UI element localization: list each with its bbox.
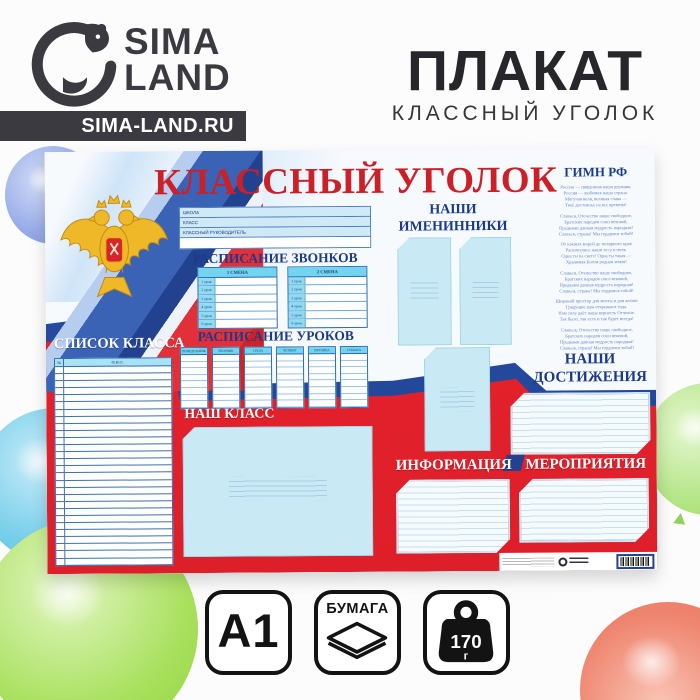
bells-heading: РАСПИСАНИЕ ЗВОНКОВ	[179, 250, 371, 267]
bells-table-shift1: 1 СМЕНА 1 урок 2 урок 3 урок 4 урок 5 ур…	[197, 267, 277, 330]
product-photo: SIMA LAND SIMA-LAND.RU ПЛАКАТ КЛАССНЫЙ У…	[0, 0, 700, 700]
bell-row-label: 6 урок	[289, 319, 306, 328]
school-form: ШКОЛА КЛАСС КЛАССНЫЙ РУКОВОДИТЕЛЬ	[179, 206, 371, 249]
birthday-card	[397, 237, 452, 345]
achievements-heading: НАШИ ДОСТИЖЕНИЯ	[530, 350, 650, 387]
day-column: СУББОТА	[340, 346, 368, 408]
birthday-card	[459, 237, 512, 345]
achievements-panel	[510, 392, 650, 455]
material-badge: БУМАГА	[314, 590, 401, 675]
mini-brand-text	[569, 557, 588, 565]
bells-table-shift2: 2 СМЕНА 1 урок 2 урок 3 урок 4 урок 5 ур…	[287, 266, 367, 329]
bell-row-label: 4 урок	[199, 303, 216, 311]
product-title: ПЛАКАТ	[355, 38, 695, 104]
bell-row-label: 1 урок	[288, 277, 305, 285]
barcode	[618, 555, 652, 566]
poster-title: КЛАССНЫЙ УГОЛОК	[131, 158, 581, 204]
brand-wordmark: SIMA LAND	[124, 24, 231, 96]
material-label: БУМАГА	[318, 601, 397, 617]
website-banner: SIMA-LAND.RU	[0, 111, 246, 141]
anthem-stanza: Россия — священная наша держава, Россия …	[543, 184, 649, 209]
mini-bear-icon	[558, 557, 567, 566]
day-column: ПЯТНИЦА	[308, 346, 336, 408]
bell-row-label: 3 урок	[199, 295, 216, 303]
product-subtitle: КЛАССНЫЙ УГОЛОК	[355, 102, 695, 126]
barcode-pad	[616, 553, 654, 568]
anthem-stanza: Славься, Отечество наше свободное, Братс…	[543, 212, 649, 237]
placeholder-text	[229, 476, 327, 501]
size-badge: А1	[205, 590, 292, 675]
bell-row-label: 1 урок	[198, 278, 215, 286]
birthdays-heading: НАШИ ИМЕНИННИКИ	[395, 201, 511, 236]
weight-icon: 170 г	[436, 598, 496, 668]
col-name: Ф.И.О.	[64, 358, 171, 366]
bell-row-label: 2 урок	[198, 286, 215, 294]
spec-badges: А1 БУМАГА 170 г	[205, 590, 510, 675]
anthem-stanza: Славься, Отечество наше свободное, Братс…	[543, 269, 649, 294]
lesson-cell	[309, 400, 335, 407]
shift1-header: 1 СМЕНА	[198, 268, 276, 279]
bell-row-label: 3 урок	[289, 294, 306, 302]
balloon-knot	[673, 512, 686, 525]
information-panel	[396, 479, 511, 554]
placeholder-text	[441, 387, 474, 411]
birthday-card	[424, 347, 491, 451]
lessons-heading: РАСПИСАНИЕ УРОКОВ	[180, 328, 372, 345]
print-info-strip	[499, 552, 657, 571]
lesson-cell	[341, 400, 367, 407]
form-field-empty	[180, 237, 370, 248]
poster: КЛАССНЫЙ УГОЛОК ШКОЛА КЛАСС КЛАССНЫЙ РУК…	[45, 148, 658, 574]
anthem-text: Россия — священная наша держава, Россия …	[543, 184, 650, 356]
svg-text:170: 170	[450, 631, 481, 652]
events-panel	[519, 478, 649, 543]
bell-row-label: 5 урок	[289, 311, 306, 319]
day-column: ВТОРНИК	[212, 347, 240, 409]
anthem-heading: ГИМН РФ	[543, 164, 649, 181]
sima-land-bear-logo-icon	[28, 22, 120, 114]
brand-line1: SIMA	[124, 24, 231, 60]
day-column: ЧЕТВЕРГ	[276, 346, 304, 408]
class-list-row	[56, 558, 172, 566]
day-column: СРЕДА	[244, 347, 272, 409]
events-heading: МЕРОПРИЯТИЯ	[521, 456, 651, 474]
balloon-salmon	[580, 602, 700, 700]
bell-row-label: 4 урок	[289, 302, 306, 310]
mini-brand-logo	[558, 556, 588, 567]
paper-stack-icon	[325, 620, 389, 668]
placeholder-text	[411, 279, 438, 303]
information-heading: ИНФОРМАЦИЯ	[396, 457, 512, 475]
brand-line2: LAND	[124, 60, 231, 96]
anthem-stanza: От южных морей до полярного края Раскину…	[543, 241, 649, 266]
manufacturer-text	[502, 557, 554, 566]
weight-badge: 170 г	[423, 590, 510, 675]
shift2-header: 2 СМЕНА	[288, 267, 366, 278]
placeholder-text	[472, 278, 498, 302]
bell-row-label: 5 урок	[199, 312, 216, 320]
anthem-stanza: Широкий простор для мечты и для жизни Гр…	[544, 298, 650, 323]
bell-row-label: 6 урок	[199, 320, 216, 329]
our-class-heading: НАШ КЛАСС	[184, 407, 274, 424]
anthem-stanza: Славься, Отечество наше свободное, Братс…	[544, 326, 650, 351]
day-column: ПОНЕДЕЛЬНИК	[180, 347, 208, 409]
col-number: №	[55, 359, 64, 366]
class-list-heading: СПИСОК КЛАССА	[54, 335, 174, 353]
svg-text:г: г	[464, 650, 469, 662]
our-class-photo-panel	[182, 426, 373, 557]
bell-row-label: 2 урок	[288, 286, 305, 294]
lesson-cell	[277, 400, 303, 407]
class-list-table: № Ф.И.О.	[54, 357, 173, 566]
coat-of-arms-icon	[57, 193, 172, 316]
